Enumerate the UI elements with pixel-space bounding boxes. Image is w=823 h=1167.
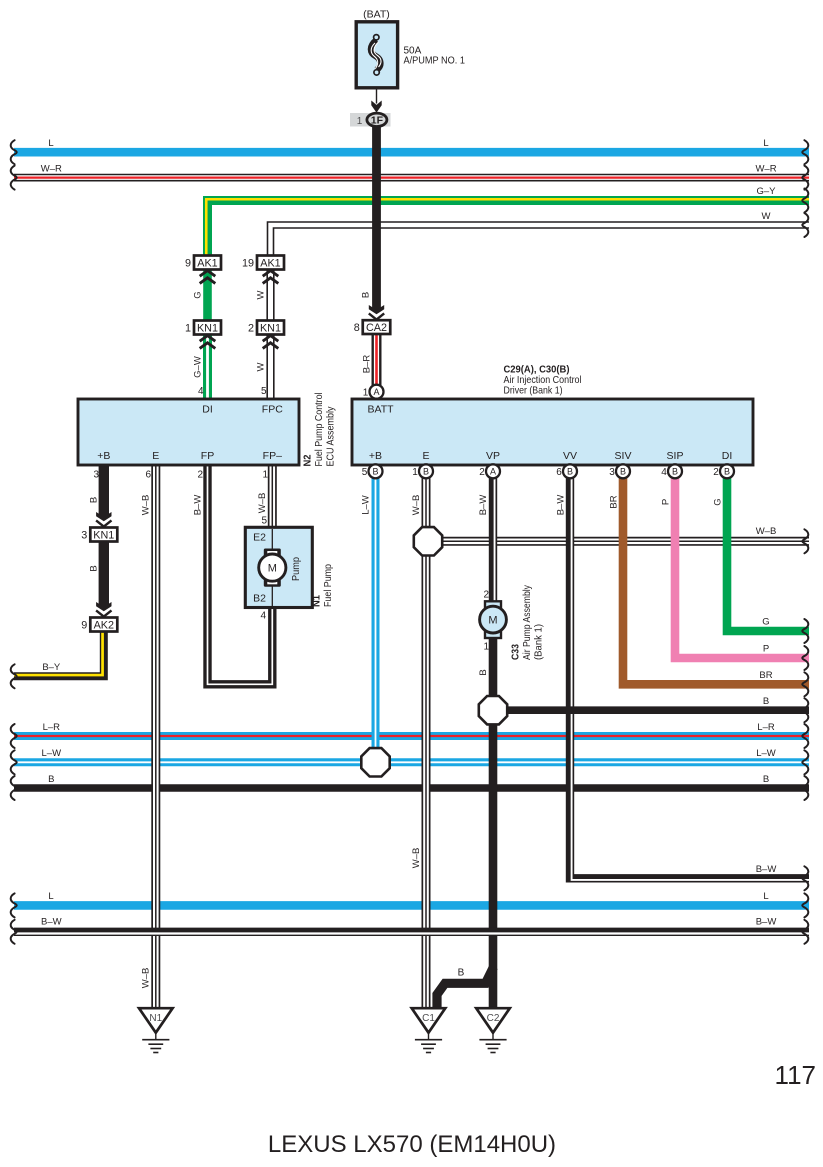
svg-text:B–W: B–W (756, 864, 777, 875)
svg-text:FP: FP (201, 450, 214, 462)
svg-text:L: L (763, 891, 768, 902)
svg-text:B: B (763, 774, 769, 785)
svg-text:P: P (763, 644, 769, 655)
svg-text:B2: B2 (253, 593, 266, 605)
svg-text:5: 5 (362, 467, 368, 478)
svg-text:B–W: B–W (756, 917, 777, 928)
svg-text:A/PUMP NO. 1: A/PUMP NO. 1 (404, 56, 466, 67)
svg-text:B: B (423, 467, 429, 477)
svg-text:B–R: B–R (362, 355, 373, 374)
svg-text:117: 117 (775, 1060, 816, 1090)
svg-text:FPC: FPC (262, 404, 283, 416)
svg-text:L: L (48, 138, 53, 149)
svg-text:N1: N1 (311, 595, 323, 607)
svg-text:N2: N2 (302, 454, 314, 466)
svg-text:KN1: KN1 (260, 322, 281, 334)
svg-text:B: B (478, 669, 489, 675)
svg-text:AK1: AK1 (197, 257, 217, 269)
svg-text:KN1: KN1 (197, 322, 218, 334)
svg-text:BATT: BATT (367, 404, 394, 416)
svg-text:A: A (490, 467, 496, 477)
svg-text:AK1: AK1 (260, 257, 280, 269)
svg-text:W–B: W–B (756, 526, 777, 537)
svg-text:B: B (361, 292, 372, 298)
svg-text:8: 8 (354, 322, 360, 334)
svg-text:P: P (661, 499, 672, 505)
svg-text:FP–: FP– (263, 450, 282, 462)
svg-text:5: 5 (261, 386, 267, 397)
svg-text:2: 2 (197, 470, 203, 481)
svg-text:AK2: AK2 (94, 619, 114, 631)
svg-text:W: W (762, 211, 771, 222)
svg-text:BR: BR (609, 495, 620, 508)
svg-text:W–B: W–B (257, 493, 268, 514)
svg-text:+B: +B (97, 450, 110, 462)
svg-text:L–W: L–W (42, 748, 62, 759)
svg-text:4: 4 (198, 386, 204, 397)
svg-text:2: 2 (483, 590, 489, 601)
svg-text:L: L (763, 138, 768, 149)
svg-text:W: W (256, 362, 267, 371)
svg-text:W–B: W–B (411, 495, 422, 516)
svg-text:W–R: W–R (755, 164, 776, 175)
svg-text:(Bank 1): (Bank 1) (533, 624, 545, 660)
svg-text:1F: 1F (371, 115, 384, 127)
svg-text:1: 1 (412, 467, 418, 478)
svg-text:N1: N1 (149, 1013, 162, 1024)
svg-text:L: L (48, 891, 53, 902)
svg-text:B: B (89, 497, 100, 503)
svg-text:B: B (763, 696, 769, 707)
svg-text:Air Pump Assembly: Air Pump Assembly (521, 584, 533, 660)
svg-text:E: E (422, 450, 429, 462)
svg-text:C2: C2 (487, 1013, 500, 1024)
svg-text:6: 6 (145, 470, 151, 481)
svg-text:B: B (458, 968, 465, 979)
svg-text:C33: C33 (510, 644, 522, 660)
svg-text:L–R: L–R (757, 722, 775, 733)
svg-text:B: B (89, 565, 100, 571)
svg-text:E2: E2 (253, 532, 266, 544)
svg-text:VP: VP (486, 450, 500, 462)
svg-text:6: 6 (556, 467, 562, 478)
svg-text:M: M (488, 615, 497, 627)
svg-text:B: B (567, 467, 573, 477)
svg-text:(BAT): (BAT) (363, 9, 390, 21)
svg-text:B–W: B–W (556, 495, 567, 516)
svg-text:2: 2 (248, 322, 254, 334)
svg-text:9: 9 (185, 257, 191, 269)
svg-text:M: M (268, 563, 277, 575)
svg-text:ECU Assembly: ECU Assembly (325, 406, 337, 467)
svg-text:SIV: SIV (615, 450, 632, 462)
svg-text:B: B (620, 467, 626, 477)
svg-text:+B: +B (369, 450, 382, 462)
svg-text:B: B (724, 467, 730, 477)
svg-text:5: 5 (261, 516, 267, 527)
svg-text:L–W: L–W (756, 748, 776, 759)
svg-text:2: 2 (713, 467, 719, 478)
svg-text:Pump: Pump (290, 557, 302, 581)
svg-text:L–W: L–W (361, 495, 372, 515)
svg-text:1: 1 (262, 470, 268, 481)
svg-text:G: G (713, 498, 724, 505)
svg-text:VV: VV (563, 450, 577, 462)
svg-text:KN1: KN1 (93, 529, 114, 541)
svg-text:B–W: B–W (478, 495, 489, 516)
svg-text:E: E (152, 450, 159, 462)
svg-text:Driver (Bank 1): Driver (Bank 1) (504, 385, 563, 397)
svg-text:SIP: SIP (667, 450, 684, 462)
svg-text:CA2: CA2 (366, 322, 387, 334)
svg-text:B–W: B–W (41, 917, 62, 928)
svg-text:BR: BR (759, 670, 772, 681)
svg-text:19: 19 (242, 257, 254, 269)
svg-text:DI: DI (722, 450, 733, 462)
svg-text:9: 9 (81, 619, 87, 631)
svg-text:L–R: L–R (43, 722, 61, 733)
svg-text:B: B (48, 774, 54, 785)
svg-text:B–W: B–W (193, 495, 204, 516)
svg-text:Fuel Pump Control: Fuel Pump Control (313, 393, 325, 467)
svg-text:G: G (762, 617, 769, 628)
svg-text:DI: DI (202, 404, 213, 416)
svg-text:A: A (373, 387, 379, 397)
svg-text:B: B (672, 467, 678, 477)
svg-text:G: G (193, 291, 204, 298)
svg-text:3: 3 (609, 467, 615, 478)
svg-text:W–B: W–B (411, 848, 422, 869)
svg-text:4: 4 (260, 611, 266, 622)
svg-text:Fuel Pump: Fuel Pump (322, 564, 334, 607)
svg-text:1: 1 (363, 387, 369, 398)
svg-text:3: 3 (81, 529, 87, 541)
svg-text:W–B: W–B (141, 968, 152, 989)
svg-text:G–Y: G–Y (756, 186, 776, 197)
svg-text:G–W: G–W (193, 356, 204, 378)
svg-text:C1: C1 (422, 1013, 435, 1024)
svg-text:B: B (372, 467, 378, 477)
svg-text:W: W (256, 290, 267, 299)
svg-text:B–Y: B–Y (42, 662, 61, 673)
svg-text:W–R: W–R (41, 164, 62, 175)
svg-text:W–B: W–B (141, 495, 152, 516)
svg-text:4: 4 (661, 467, 667, 478)
svg-text:1: 1 (483, 642, 489, 653)
svg-text:1: 1 (357, 116, 363, 127)
svg-text:3: 3 (93, 470, 99, 481)
svg-text:2: 2 (479, 467, 485, 478)
svg-text:1: 1 (185, 322, 191, 334)
svg-text:LEXUS LX570 (EM14H0U): LEXUS LX570 (EM14H0U) (268, 1131, 556, 1158)
